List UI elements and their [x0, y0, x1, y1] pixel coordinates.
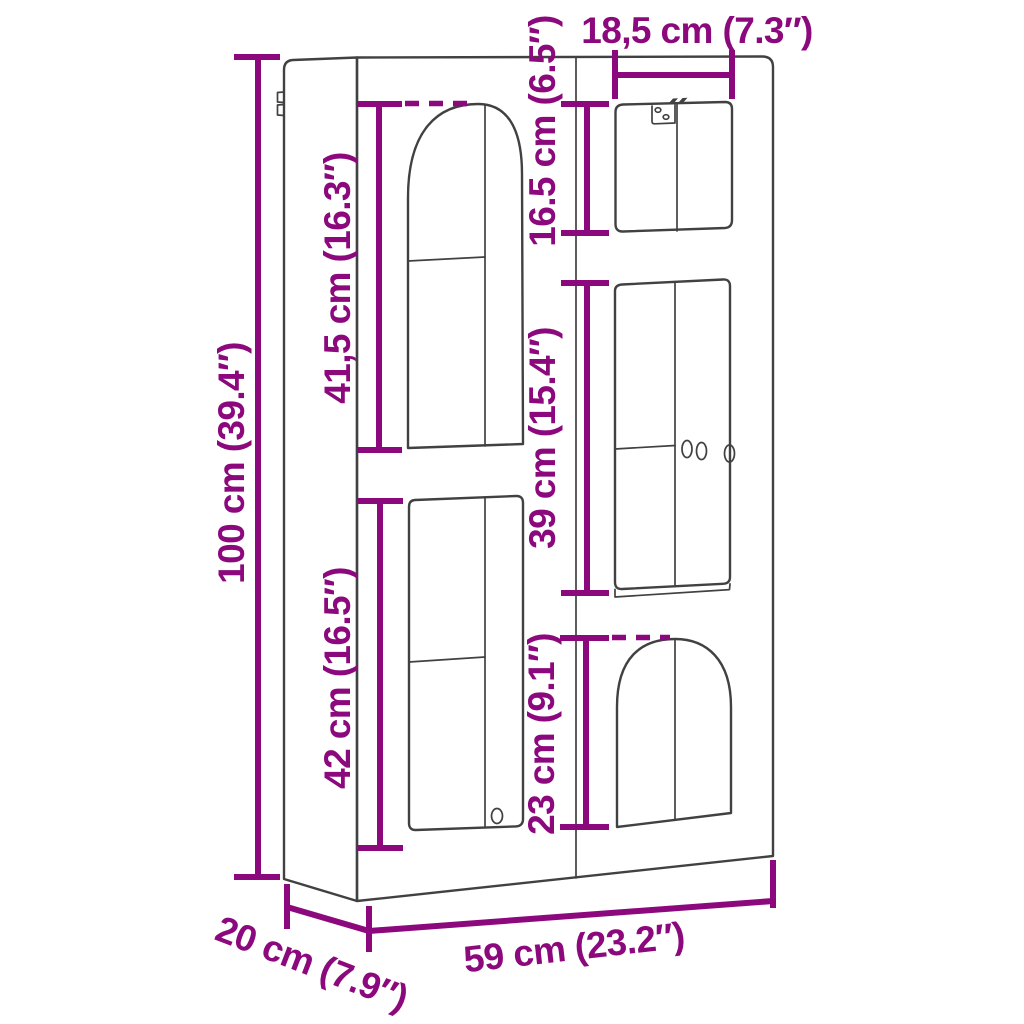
- dimension-label-upper-left-door-height: 41,5 cm (16.3″): [317, 152, 358, 403]
- dimension-bottom-right-arch-height: 23 cm (9.1″): [521, 633, 670, 835]
- latch-pin-1: [655, 108, 661, 113]
- lower-left-door: [409, 496, 523, 830]
- upper-arch-door: [408, 104, 523, 448]
- dimension-label-total-height: 100 cm (39.4″): [211, 342, 252, 584]
- middle-knob-1: [682, 441, 692, 458]
- dimension-label-total-depth: 20 cm (7.9″): [210, 908, 413, 1019]
- bottom-arch-niche: [617, 639, 731, 827]
- middle-knob-2: [697, 443, 707, 460]
- dimension-label-bottom-right-arch-height: 23 cm (9.1″): [521, 633, 562, 835]
- dimension-label-middle-right-shelf-height: 39 cm (15.4″): [522, 327, 563, 549]
- lower-door-shelf: [409, 657, 485, 662]
- lower-door-handle: [492, 809, 503, 824]
- dimension-top-right-door-width: 18,5 cm (7.3″): [581, 10, 812, 99]
- cabinet-front-face: [357, 57, 773, 902]
- dimension-diagram-page: 100 cm (39.4″) 41,5 cm (16.3″) 42 cm (16…: [0, 0, 1024, 1024]
- dimension-upper-left-door-height: 41,5 cm (16.3″): [317, 104, 470, 451]
- upper-arch-shelf: [408, 257, 485, 261]
- latch-pin-2: [663, 115, 669, 120]
- dimension-total-height: 100 cm (39.4″): [211, 57, 280, 877]
- middle-niche-shelf: [615, 446, 675, 450]
- top-right-door: [616, 102, 733, 232]
- middle-niche: [615, 279, 730, 589]
- dimension-lower-left-door-height: 42 cm (16.5″): [317, 501, 403, 848]
- dimension-label-top-right-door-height: 16.5 cm (6.5″): [522, 15, 563, 246]
- dimension-label-lower-left-door-height: 42 cm (16.5″): [317, 567, 358, 789]
- cabinet-dimension-drawing: 100 cm (39.4″) 41,5 cm (16.3″) 42 cm (16…: [0, 0, 1024, 1024]
- dimension-label-top-right-door-width: 18,5 cm (7.3″): [581, 10, 812, 51]
- dim-line: [287, 907, 369, 931]
- dimension-total-depth: 20 cm (7.9″): [210, 884, 413, 1019]
- dimension-middle-right-shelf-height: 39 cm (15.4″): [522, 283, 609, 593]
